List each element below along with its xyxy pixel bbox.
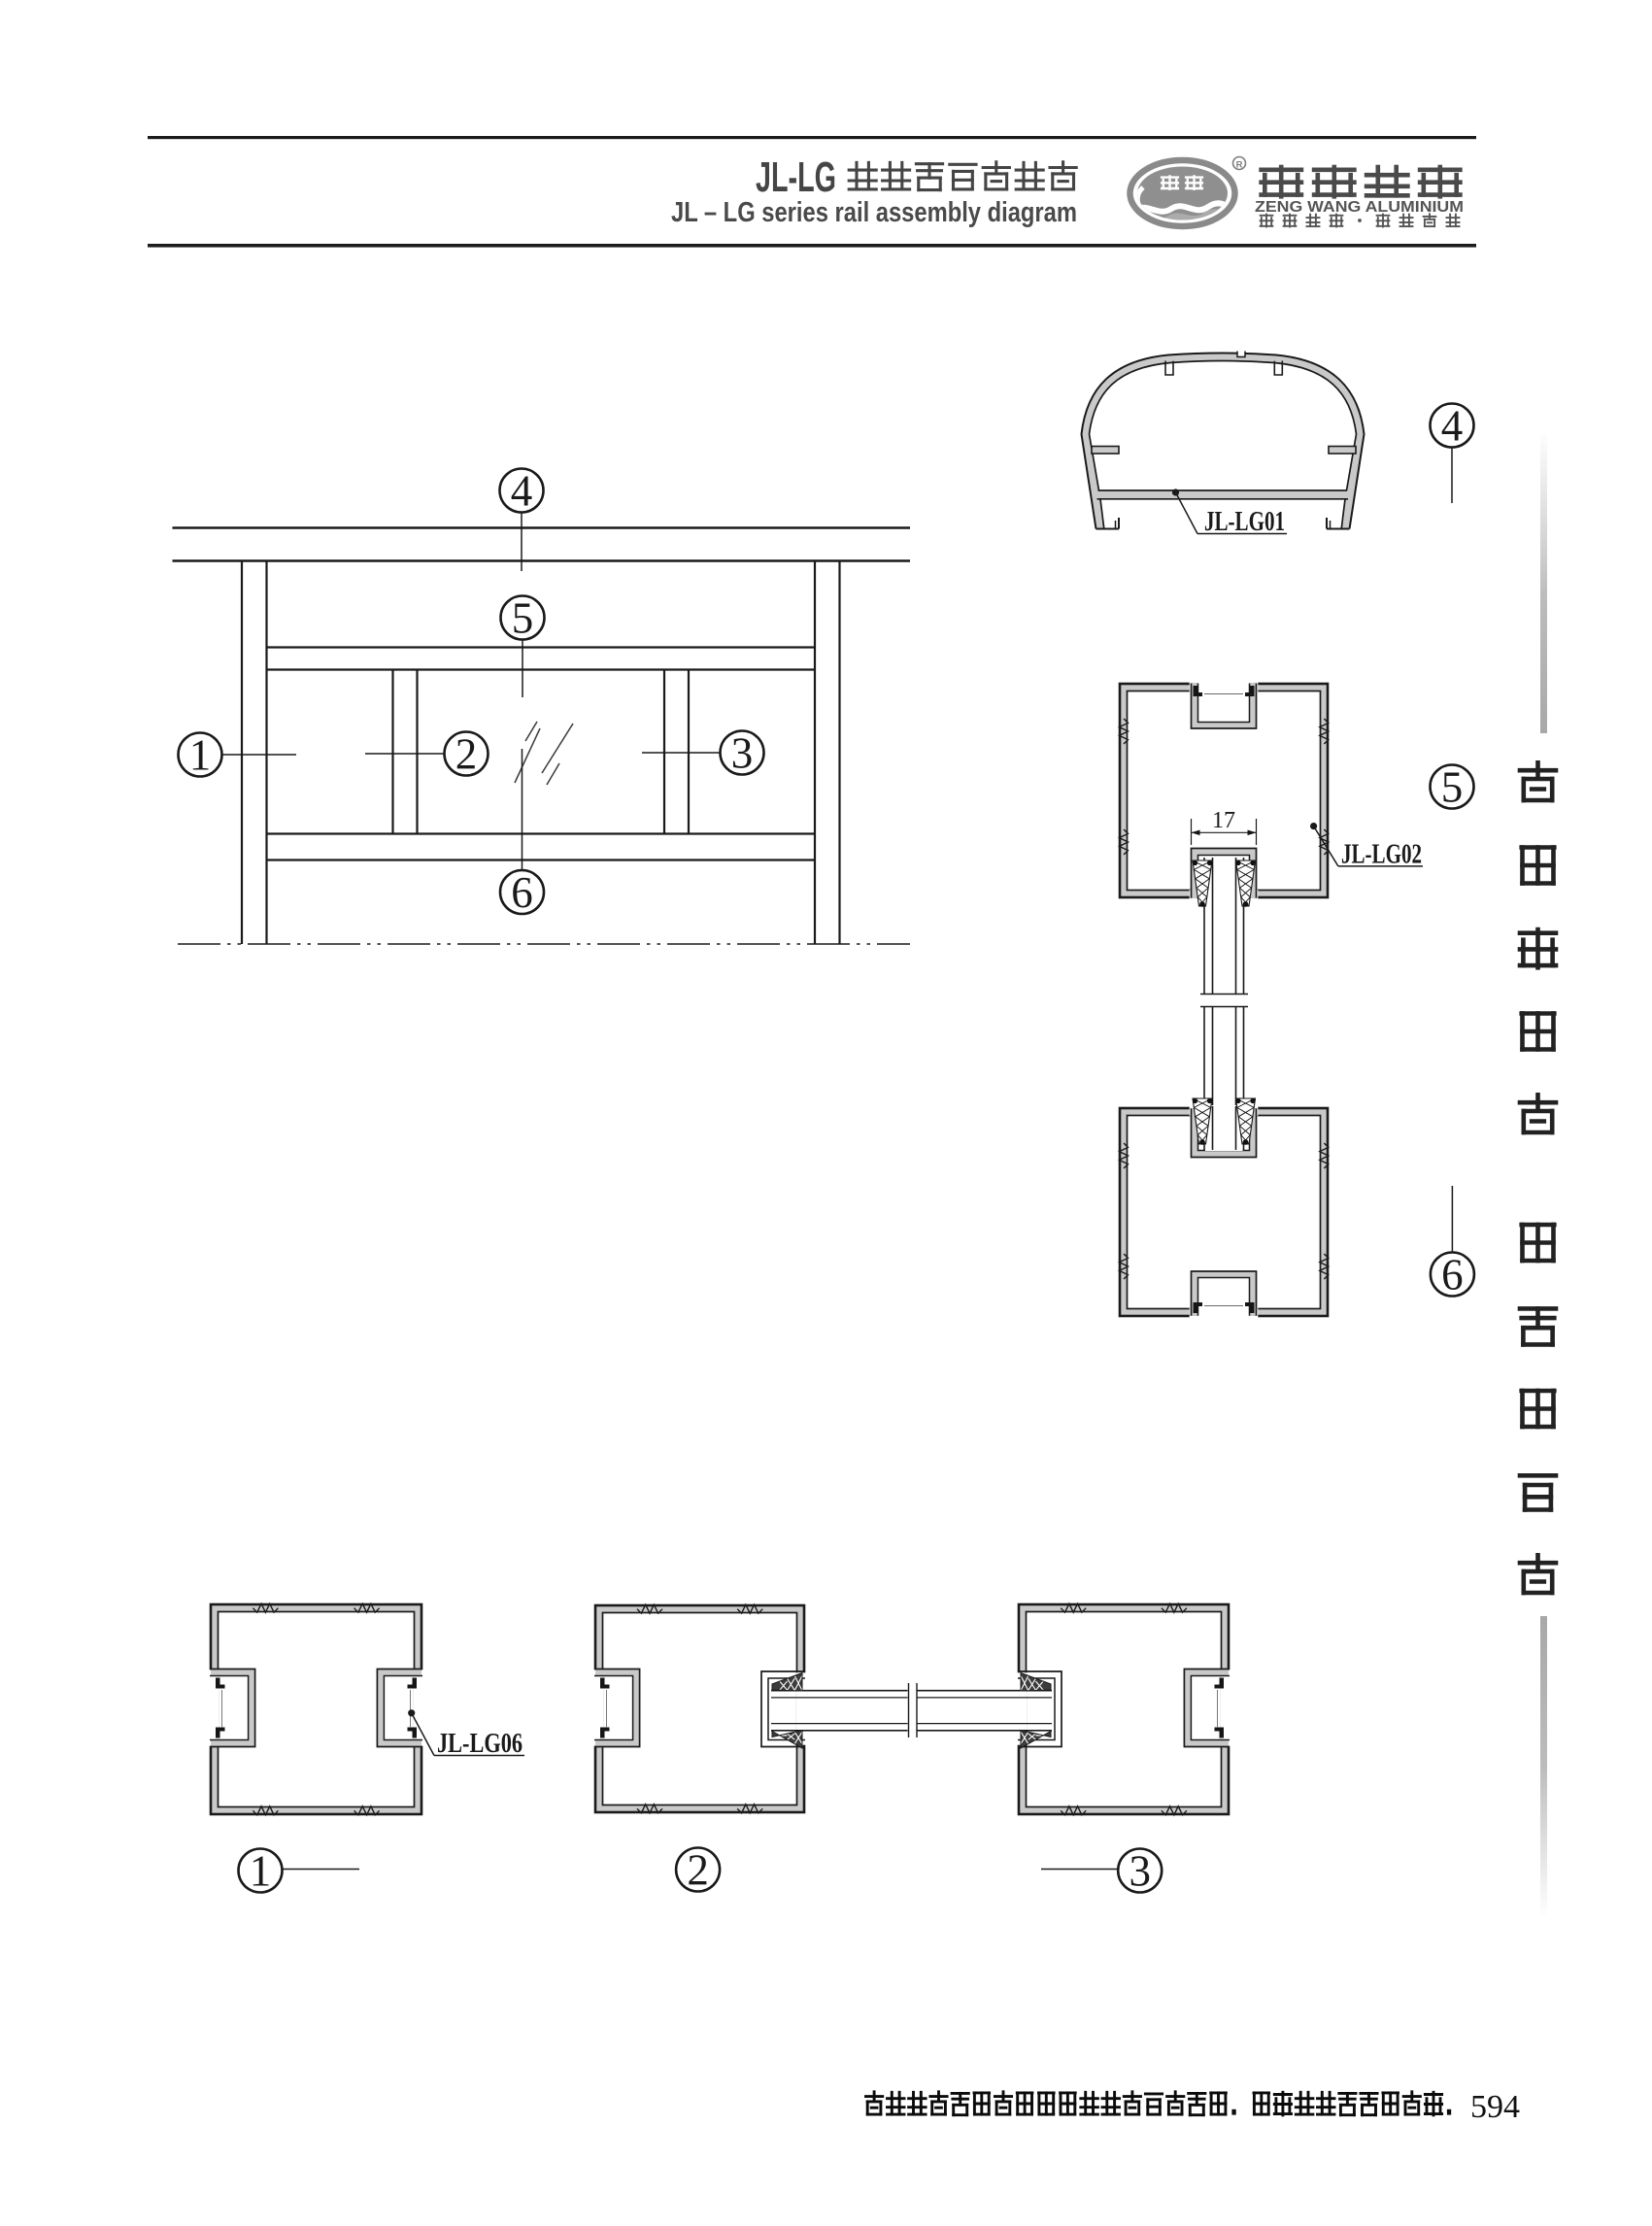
svg-text:6: 6 — [1441, 1251, 1464, 1299]
svg-text:R: R — [1236, 160, 1243, 171]
svg-text:3: 3 — [731, 729, 754, 778]
svg-text:6: 6 — [511, 868, 533, 917]
svg-text:17: 17 — [1212, 808, 1235, 833]
svg-text:JL-LG: JL-LG — [756, 153, 836, 201]
svg-text:5: 5 — [1441, 763, 1464, 812]
svg-text:1: 1 — [189, 731, 212, 780]
svg-text:4: 4 — [1441, 402, 1464, 451]
svg-text:594: 594 — [1470, 2089, 1520, 2125]
svg-text:2: 2 — [455, 730, 478, 779]
svg-text:1: 1 — [250, 1847, 272, 1896]
svg-text:JL – LG series rail assembly d: JL – LG series rail assembly diagram — [671, 197, 1077, 228]
svg-text:4: 4 — [511, 467, 533, 516]
svg-text:JL-LG06: JL-LG06 — [437, 1728, 523, 1759]
svg-text:JL-LG02: JL-LG02 — [1341, 839, 1422, 870]
svg-text:JL-LG01: JL-LG01 — [1204, 506, 1285, 537]
svg-text:5: 5 — [512, 594, 534, 643]
svg-text:ZENG WANG ALUMINIUM: ZENG WANG ALUMINIUM — [1255, 199, 1464, 216]
svg-text:2: 2 — [687, 1846, 709, 1895]
svg-text:3: 3 — [1129, 1847, 1151, 1896]
